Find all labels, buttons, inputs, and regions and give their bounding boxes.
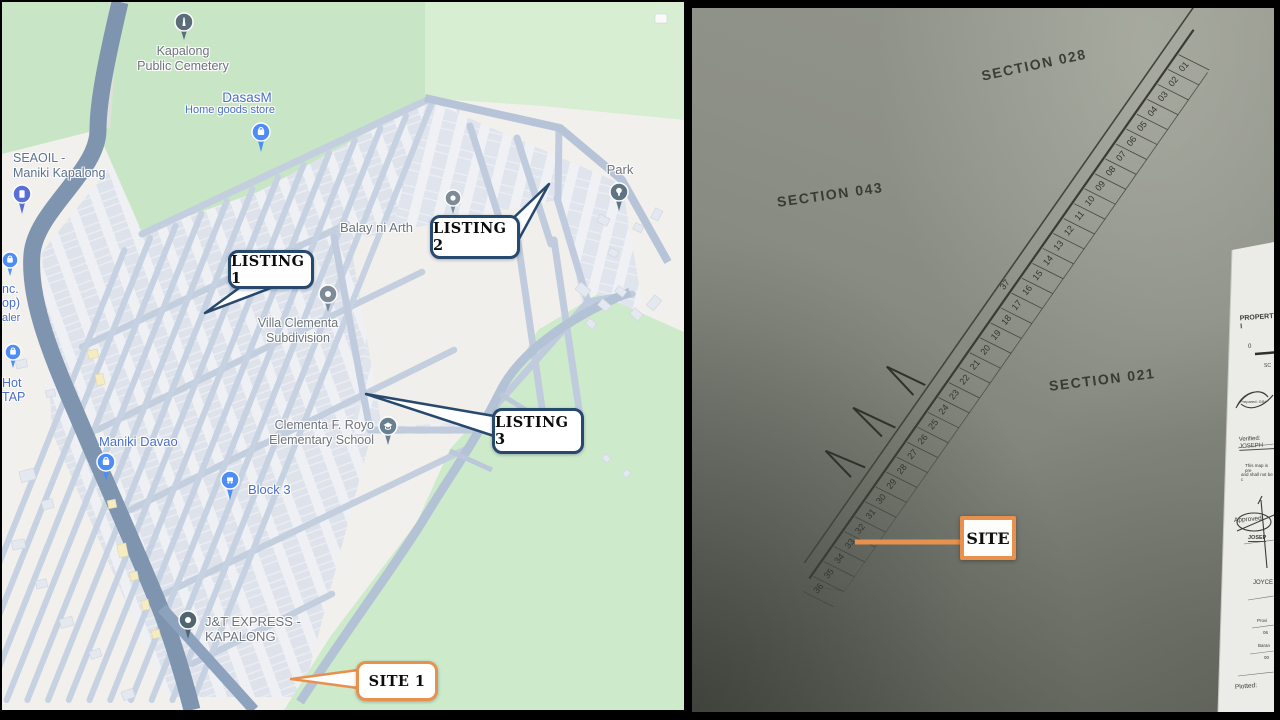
svg-text:16: 16 [1020, 283, 1034, 297]
svg-text:17: 17 [1010, 298, 1024, 312]
approved-name: JOSEP [1248, 535, 1266, 542]
svg-text:01: 01 [1177, 59, 1191, 73]
svg-text:30: 30 [874, 492, 888, 506]
site-label: SITE [966, 529, 1009, 548]
svg-text:21: 21 [968, 358, 982, 372]
province-no: 06 [1263, 631, 1268, 636]
svg-text:24: 24 [937, 402, 951, 416]
callout-tails [2, 2, 684, 710]
svg-text:10: 10 [1083, 194, 1097, 208]
svg-text:27: 27 [905, 447, 919, 461]
svg-text:02: 02 [1166, 74, 1180, 88]
svg-text:23: 23 [947, 387, 961, 401]
svg-text:11: 11 [1072, 209, 1086, 223]
svg-text:36: 36 [811, 581, 825, 595]
property-title: PROPERTY I [1240, 313, 1274, 331]
survey-photo-panel: 0102030405060708091011121314151617181920… [692, 8, 1274, 712]
svg-text:08: 08 [1104, 164, 1118, 178]
svg-text:14: 14 [1041, 253, 1055, 267]
svg-text:29: 29 [884, 477, 898, 491]
site1-tail [291, 670, 358, 688]
svg-text:18: 18 [999, 313, 1013, 327]
note-line-2: and shall not be c [1241, 473, 1274, 483]
svg-text:07: 07 [1114, 149, 1128, 163]
svg-text:05: 05 [1135, 119, 1149, 133]
verified-line: Verified: JOSEPH [1239, 435, 1274, 451]
listing1-label: LISTING 1 [231, 253, 311, 287]
site1-label: SITE 1 [369, 673, 426, 690]
svg-text:25: 25 [926, 417, 940, 431]
svg-text:09: 09 [1093, 179, 1107, 193]
barangay-no: 00 [1264, 656, 1269, 661]
svg-text:13: 13 [1051, 238, 1065, 252]
lot-outer-boundary [845, 72, 1208, 591]
svg-text:12: 12 [1062, 223, 1076, 237]
site-callout: SITE [960, 516, 1016, 560]
svg-text:32: 32 [853, 522, 867, 536]
prepared-line: Prepared: GIN [1240, 400, 1266, 404]
listing3-tail [366, 394, 494, 436]
road-edge-right [809, 30, 1193, 579]
svg-text:03: 03 [1156, 89, 1170, 103]
survey-drawing: 0102030405060708091011121314151617181920… [692, 8, 1274, 712]
site1-callout: SITE 1 [356, 661, 438, 701]
svg-text:34: 34 [832, 551, 846, 565]
listing2-label: LISTING 2 [433, 220, 517, 254]
scale-text: SC [1264, 364, 1271, 370]
barangay-line: Baran [1258, 644, 1270, 649]
svg-text:33: 33 [843, 537, 857, 551]
svg-text:26: 26 [916, 432, 930, 446]
svg-text:15: 15 [1031, 268, 1045, 282]
svg-text:35: 35 [822, 566, 836, 580]
svg-text:28: 28 [895, 462, 909, 476]
svg-text:22: 22 [957, 373, 971, 387]
svg-text:31: 31 [863, 507, 877, 521]
svg-text:06: 06 [1124, 134, 1138, 148]
listing3-callout: LISTING 3 [492, 408, 584, 454]
svg-text:19: 19 [989, 328, 1003, 342]
listing1-callout: LISTING 1 [228, 250, 314, 289]
svg-text:20: 20 [978, 343, 992, 357]
scale-zero: 0 [1248, 344, 1251, 351]
map-panel: Kapalong Public Cemetery DasasM Home goo… [2, 2, 684, 710]
listing2-callout: LISTING 2 [430, 215, 520, 259]
lot-37-label: 37 [998, 277, 1012, 291]
svg-text:04: 04 [1145, 104, 1159, 118]
name2-line: JOYCE [1253, 580, 1273, 587]
listing3-label: LISTING 3 [495, 414, 581, 448]
province-line: Provi [1257, 619, 1267, 624]
